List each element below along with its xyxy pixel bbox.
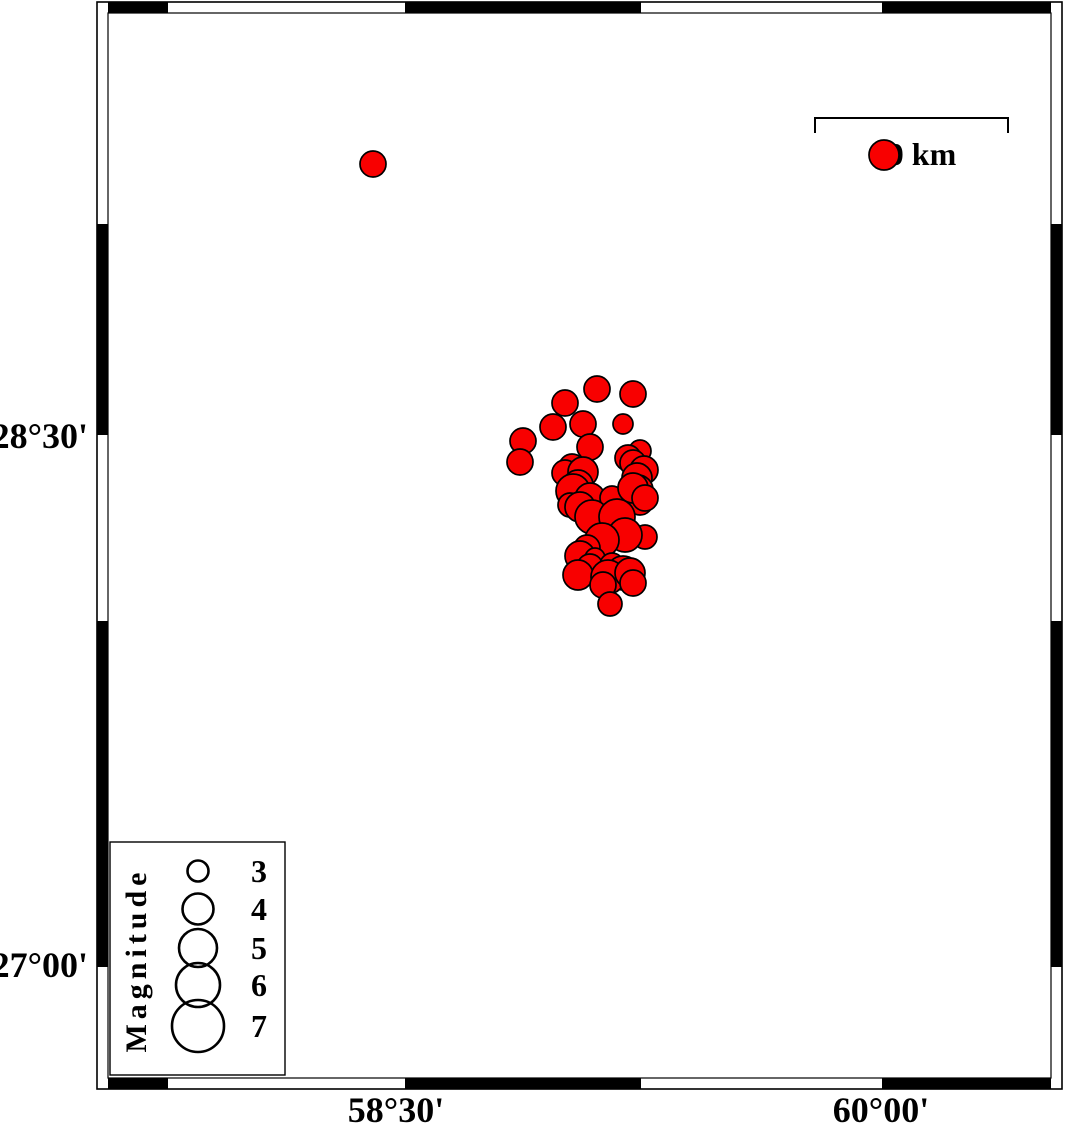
frame-black-segment-left bbox=[97, 224, 108, 435]
legend-value-mag-5: 5 bbox=[251, 930, 267, 966]
earthquake-marker bbox=[360, 151, 386, 177]
earthquake-marker bbox=[598, 592, 622, 616]
legend-value-mag-3: 3 bbox=[251, 853, 267, 889]
earthquake-marker bbox=[507, 449, 533, 475]
frame-black-segment-top bbox=[882, 2, 1051, 13]
earthquake-marker bbox=[552, 390, 578, 416]
frame-black-segment-bottom bbox=[405, 1078, 641, 1089]
frame-black-segment-bottom bbox=[882, 1078, 1051, 1089]
earthquake-marker bbox=[563, 560, 593, 590]
legend-title: Magnitude bbox=[120, 867, 153, 1052]
legend-value-mag-7: 7 bbox=[251, 1008, 267, 1044]
legend-value-mag-4: 4 bbox=[251, 891, 267, 927]
seismicity-map-figure: 28°30'27°00'58°30'60°00' 60 km Magnitude… bbox=[0, 0, 1066, 1126]
earthquake-marker bbox=[869, 140, 899, 170]
earthquake-marker bbox=[620, 570, 646, 596]
earthquake-marker bbox=[570, 411, 596, 437]
earthquake-marker bbox=[620, 381, 646, 407]
frame-black-segment-top bbox=[108, 2, 168, 13]
frame-black-segment-right bbox=[1051, 224, 1062, 435]
frame-black-segment-bottom bbox=[108, 1078, 168, 1089]
earthquake-marker bbox=[540, 414, 566, 440]
earthquake-marker bbox=[584, 376, 610, 402]
latitude-label: 28°30' bbox=[0, 416, 88, 456]
frame-black-segment-right bbox=[1051, 621, 1062, 967]
earthquake-marker bbox=[577, 434, 603, 460]
longitude-label: 58°30' bbox=[348, 1090, 444, 1126]
magnitude-legend: Magnitude 34567 bbox=[110, 842, 285, 1075]
frame-black-segment-left bbox=[97, 621, 108, 967]
longitude-label: 60°00' bbox=[833, 1090, 929, 1126]
legend-value-mag-6: 6 bbox=[251, 967, 267, 1003]
earthquake-marker bbox=[613, 414, 633, 434]
latitude-label: 27°00' bbox=[0, 945, 88, 985]
frame-black-segment-top bbox=[405, 2, 641, 13]
earthquake-marker bbox=[632, 485, 658, 511]
